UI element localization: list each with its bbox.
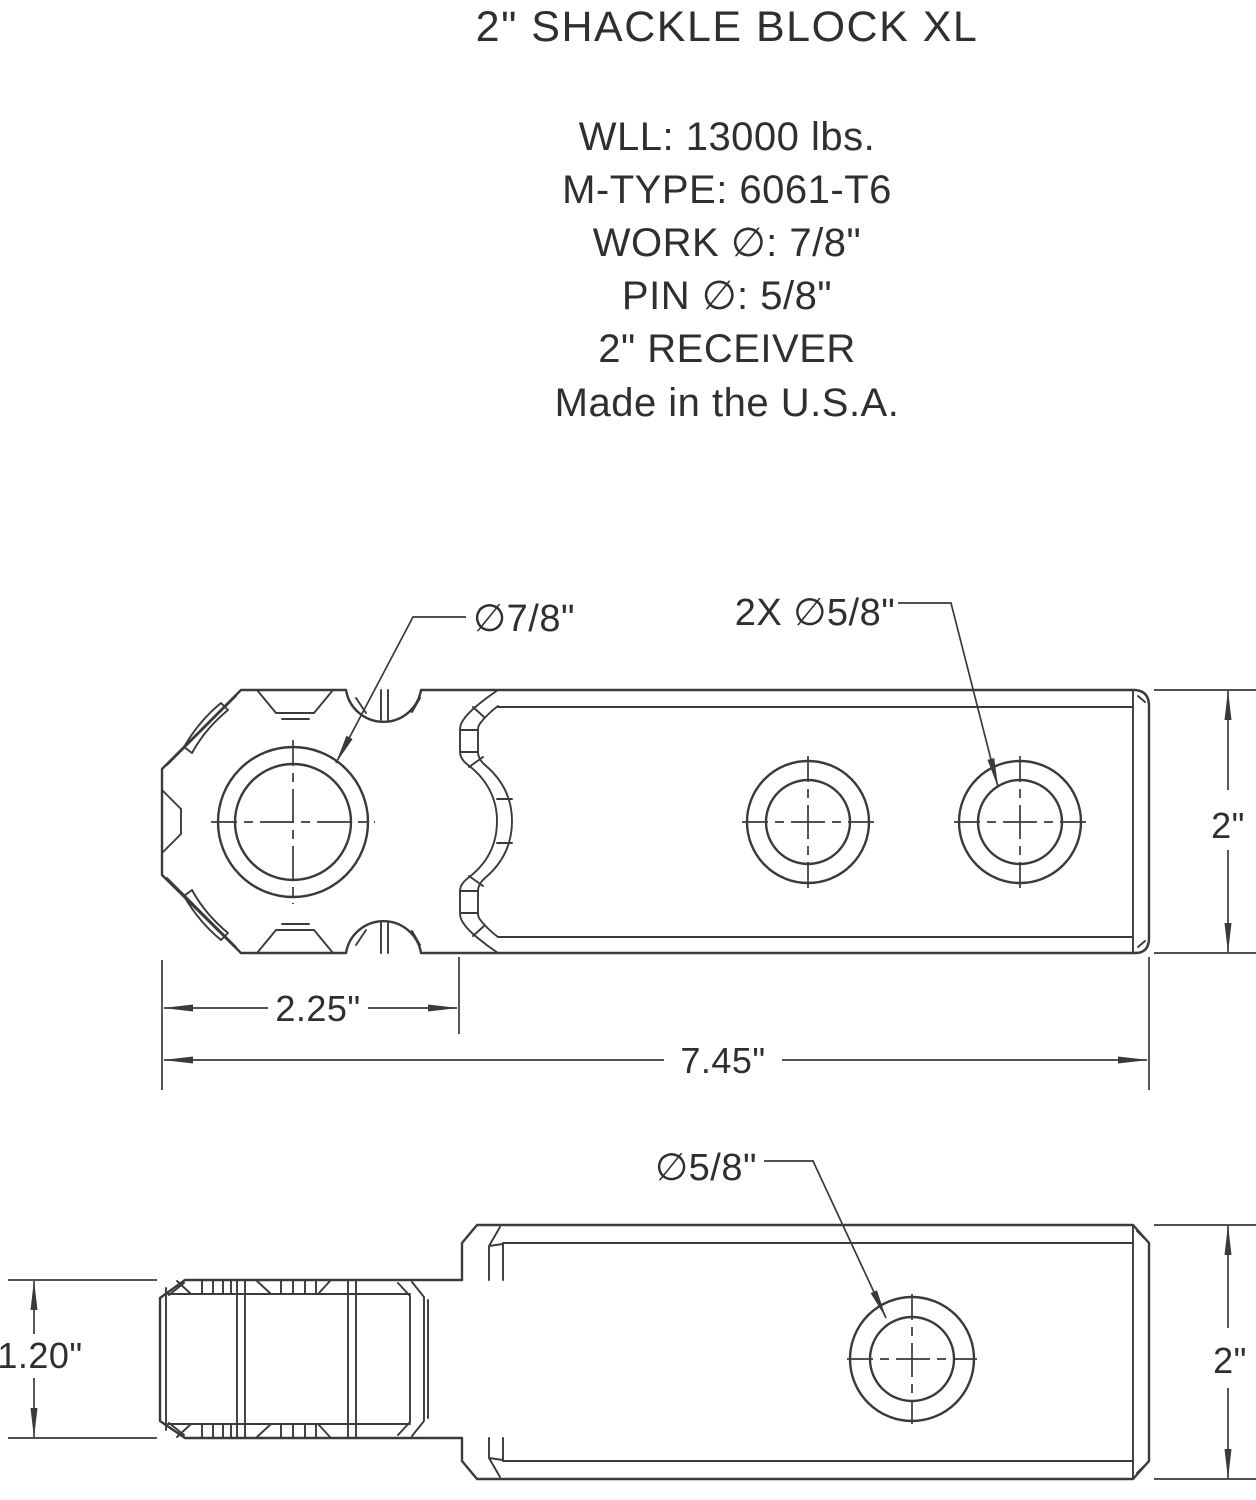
leader-pin-holes-line [898,603,998,787]
dim-side-height: 2" [1213,1226,1247,1478]
dim-side-height-label: 2" [1213,1340,1247,1381]
side-view: 1.20" 2" ∅5/8" [0,1147,1256,1479]
side-view-extension-lines [8,1225,1256,1479]
main-hole [211,740,375,904]
dim-head-length-label: 2.25" [275,988,360,1029]
dim-head-length: 2.25" [164,988,457,1029]
dim-head-height: 1.20" [0,1281,83,1437]
main-hole-centerlines [211,740,375,904]
spec-wll: WLL: 13000 lbs. [579,115,876,159]
spec-made-in-usa: Made in the U.S.A. [555,381,900,425]
neck-chamfer-band [460,690,512,953]
title-block: 2" SHACKLE BLOCK XL WLL: 13000 lbs. M-TY… [476,3,979,425]
drawing-title: 2" SHACKLE BLOCK XL [476,3,979,51]
leader-pin-holes-label: 2X ∅5/8" [735,592,895,634]
spec-material-type: M-TYPE: 6061-T6 [562,168,892,212]
head-side-details [166,1280,428,1438]
drawing-canvas: 2" SHACKLE BLOCK XL WLL: 13000 lbs. M-TY… [0,0,1256,1500]
pin-hole-1 [742,756,874,888]
leader-main-hole-label: ∅7/8" [473,598,575,640]
leader-side-pin-hole-label: ∅5/8" [655,1147,757,1189]
dim-head-height-label: 1.20" [0,1335,83,1376]
spec-receiver-size: 2" RECEIVER [598,327,856,371]
pin-hole-2-centerlines [954,756,1086,888]
leader-main-hole: ∅7/8" [336,598,575,763]
pin-hole-1-centerlines [742,756,874,888]
spec-pin-diameter: PIN ∅: 5/8" [622,274,832,318]
leader-side-pin-hole-line [764,1161,886,1318]
side-view-outline [160,1225,1149,1479]
top-view-outline [162,690,1149,953]
dim-overall-length: 7.45" [164,1040,1147,1081]
dim-height-label: 2" [1211,805,1245,846]
side-pin-hole [847,1294,977,1424]
top-view: 2" 2.25" 7.45" ∅7/8" 2X ∅5 [162,592,1256,1090]
receiver-details [489,1225,1144,1479]
leader-side-pin-hole: ∅5/8" [655,1147,886,1318]
spec-work-diameter: WORK ∅: 7/8" [593,221,861,265]
technical-drawing-page: 2" SHACKLE BLOCK XL WLL: 13000 lbs. M-TY… [0,0,1256,1500]
side-pin-hole-centerlines [847,1294,977,1424]
dim-overall-length-label: 7.45" [680,1040,765,1081]
pin-hole-2 [954,756,1086,888]
dim-height: 2" [1211,691,1245,952]
